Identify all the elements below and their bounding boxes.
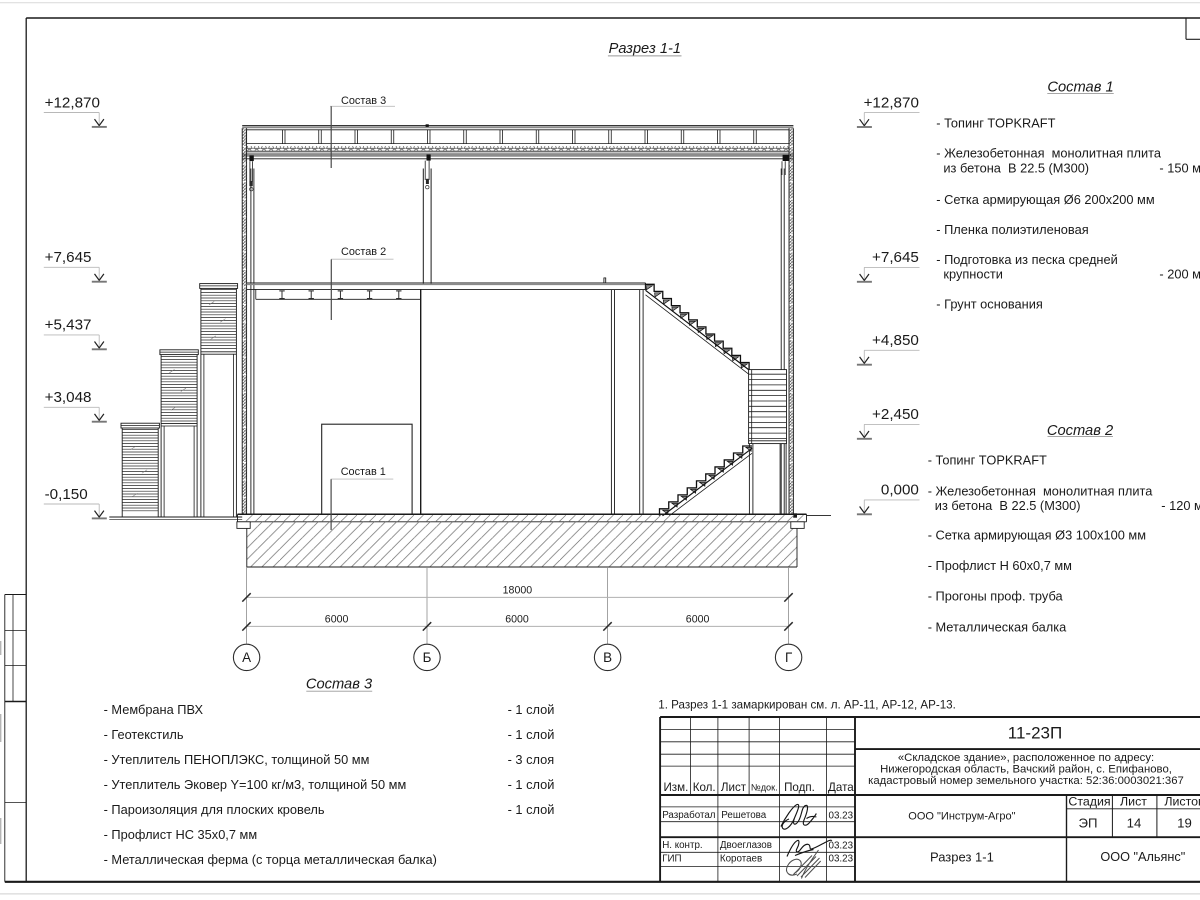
svg-text:+2,450: +2,450 (872, 406, 919, 423)
svg-text:Подп.: Подп. (784, 781, 815, 794)
svg-text:Нижегородская область, Вачский: Нижегородская область, Вачский район, с.… (880, 763, 1172, 775)
svg-text:19: 19 (1177, 816, 1192, 831)
svg-text:- 200 мм: - 200 мм (1159, 267, 1200, 282)
svg-text:6000: 6000 (686, 613, 710, 625)
svg-text:1. Разрез 1-1 замаркирован см.: 1. Разрез 1-1 замаркирован см. л. АР-11,… (658, 699, 956, 712)
svg-text:+7,645: +7,645 (872, 249, 919, 266)
svg-text:-0,150: -0,150 (45, 486, 88, 503)
svg-text:- Грунт основания: - Грунт основания (936, 297, 1043, 312)
svg-text:14: 14 (1127, 816, 1142, 831)
svg-text:Состав 3: Состав 3 (341, 95, 386, 107)
svg-text:- Утеплитель ПЕНОПЛЭКС, толщин: - Утеплитель ПЕНОПЛЭКС, толщиной 50 мм (104, 752, 370, 767)
svg-text:- Железобетонная монолитная п: - Железобетонная монолитная плита (936, 146, 1162, 161)
svg-text:+4,850: +4,850 (872, 332, 919, 349)
svg-text:03.23: 03.23 (829, 840, 854, 851)
svg-text:Разработал: Разработал (662, 810, 716, 821)
svg-text:- Подготовка из песка средней: - Подготовка из песка средней (936, 252, 1117, 267)
svg-text:+3,048: +3,048 (45, 389, 92, 406)
svg-text:«Складское здание», расположен: «Складское здание», расположенное по адр… (898, 752, 1154, 764)
svg-text:Листов: Листов (1164, 795, 1200, 809)
svg-text:Состав 1: Состав 1 (1047, 79, 1113, 95)
svg-text:ЭП: ЭП (1079, 816, 1098, 831)
svg-text:- Утеплитель Эковер Y=100 кг/м: - Утеплитель Эковер Y=100 кг/м3, толщино… (104, 777, 407, 792)
svg-text:№док.: №док. (751, 783, 778, 793)
svg-text:Состав 2: Состав 2 (341, 246, 386, 258)
svg-text:0,000: 0,000 (881, 482, 919, 499)
svg-text:- Профлист НС 35х0,7 мм: - Профлист НС 35х0,7 мм (104, 827, 258, 842)
svg-text:03.23: 03.23 (829, 810, 854, 821)
svg-text:- Пароизоляция для плоских кро: - Пароизоляция для плоских кровель (104, 802, 325, 817)
svg-text:- Прогоны проф. труба: - Прогоны проф. труба (928, 589, 1064, 604)
svg-text:- Металлическая балка: - Металлическая балка (928, 619, 1067, 634)
svg-text:- Мембрана ПВХ: - Мембрана ПВХ (104, 702, 204, 717)
svg-text:- Железобетонная монолитная п: - Железобетонная монолитная плита (928, 483, 1154, 498)
svg-text:+7,645: +7,645 (45, 249, 92, 266)
svg-text:Лист: Лист (1120, 795, 1147, 809)
svg-text:Лист: Лист (721, 781, 747, 794)
svg-text:- 1 слой: - 1 слой (508, 702, 555, 717)
svg-text:Г: Г (785, 650, 792, 665)
svg-text:Решетова: Решетова (721, 810, 766, 821)
svg-text:В: В (603, 650, 612, 665)
svg-text:Состав 1: Состав 1 (341, 466, 386, 478)
svg-text:Н. контр.: Н. контр. (662, 840, 702, 851)
svg-text:из бетона В 22.5 (М300): из бетона В 22.5 (М300) (936, 161, 1089, 176)
svg-text:- Сетка армирующая Ø6 200x200: - Сетка армирующая Ø6 200x200 мм (936, 192, 1154, 207)
svg-text:крупности: крупности (936, 267, 1003, 282)
svg-text:- 1 слой: - 1 слой (508, 777, 555, 792)
svg-text:- Пленка полиэтиленовая: - Пленка полиэтиленовая (936, 222, 1088, 237)
svg-text:Двоеглазов: Двоеглазов (720, 840, 772, 851)
svg-text:- 1 слой: - 1 слой (508, 802, 555, 817)
svg-text:Б: Б (423, 650, 432, 665)
svg-text:+12,870: +12,870 (864, 94, 919, 111)
svg-text:кадастровый номер земельного у: кадастровый номер земельного участка: 52… (868, 775, 1184, 787)
svg-text:03.23: 03.23 (829, 854, 854, 865)
svg-text:- Металлическая ферма (с торца: - Металлическая ферма (с торца металличе… (104, 852, 437, 867)
svg-text:- 120 мм: - 120 мм (1161, 498, 1200, 513)
svg-text:6000: 6000 (505, 613, 529, 625)
svg-text:Стадия: Стадия (1068, 795, 1110, 809)
svg-text:11-23П: 11-23П (1008, 723, 1062, 742)
svg-text:Состав 3: Состав 3 (306, 677, 373, 693)
svg-text:ООО "Инструм-Агро": ООО "Инструм-Агро" (908, 811, 1015, 823)
svg-text:- Топинг TOPKRAFT: - Топинг TOPKRAFT (928, 453, 1047, 468)
svg-text:18000: 18000 (503, 584, 533, 596)
svg-text:Коротаев: Коротаев (720, 854, 762, 865)
svg-text:Кол.: Кол. (693, 781, 716, 794)
svg-text:- Сетка армирующая Ø3 100x100: - Сетка армирующая Ø3 100x100 мм (928, 527, 1146, 542)
svg-text:А: А (242, 650, 251, 665)
svg-text:- 1 слой: - 1 слой (508, 727, 555, 742)
svg-text:- Профлист Н 60х0,7 мм: - Профлист Н 60х0,7 мм (928, 558, 1072, 573)
svg-text:- Топинг TOPKRAFT: - Топинг TOPKRAFT (936, 116, 1055, 131)
svg-text:- 3 слоя: - 3 слоя (508, 752, 555, 767)
svg-text:Дата: Дата (828, 781, 854, 794)
svg-text:- 150 мм: - 150 мм (1159, 161, 1200, 176)
svg-text:+12,870: +12,870 (45, 94, 100, 111)
svg-text:из бетона В 22.5 (М300): из бетона В 22.5 (М300) (928, 498, 1081, 513)
svg-text:Разрез 1-1: Разрез 1-1 (609, 41, 681, 57)
svg-text:Разрез 1-1: Разрез 1-1 (930, 849, 994, 864)
svg-text:+5,437: +5,437 (45, 317, 92, 334)
svg-text:ООО "Альянс": ООО "Альянс" (1100, 850, 1185, 864)
svg-text:6000: 6000 (325, 613, 349, 625)
svg-text:ГИП: ГИП (662, 854, 681, 865)
svg-text:- Геотекстиль: - Геотекстиль (104, 727, 184, 742)
svg-text:Изм.: Изм. (663, 781, 688, 794)
